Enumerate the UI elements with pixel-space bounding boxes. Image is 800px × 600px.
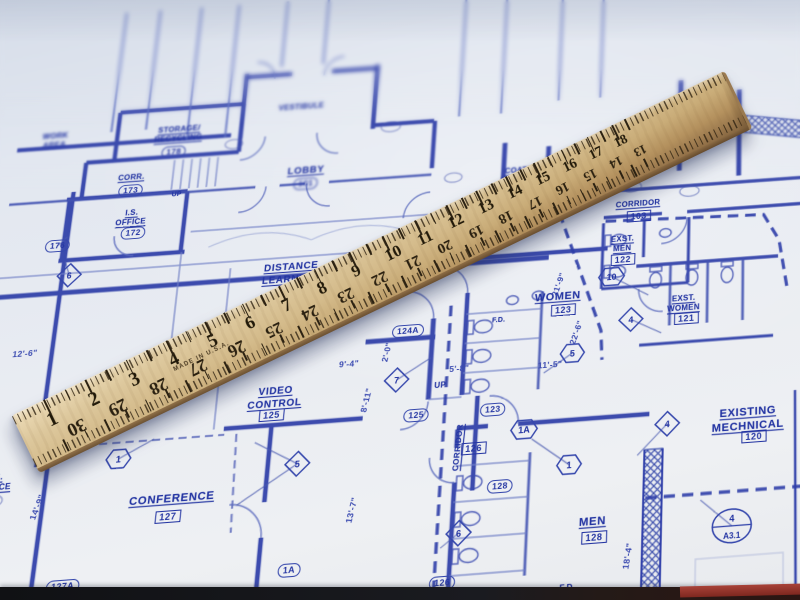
svg-text:4: 4 bbox=[729, 513, 734, 524]
ruler-number-bottom: 19 bbox=[465, 220, 486, 242]
room-number-corridor-up: 103 bbox=[627, 210, 651, 223]
ruler-number-bottom: 16 bbox=[553, 178, 572, 198]
svg-text:6: 6 bbox=[66, 271, 72, 281]
room-number-exst-women: 121 bbox=[674, 312, 698, 325]
dimension: 5'-8" bbox=[449, 363, 469, 374]
ruler-number-top: 7 bbox=[278, 294, 295, 317]
lines-thin bbox=[0, 117, 783, 600]
room-label-exst-men: EXST. MEN bbox=[610, 234, 634, 255]
room-label-men: MEN bbox=[579, 513, 606, 530]
ruler-number-bottom: 18 bbox=[495, 205, 515, 227]
ruler-number-bottom: 13 bbox=[631, 140, 649, 159]
keynote-diamond-4-mechanical: 4 bbox=[654, 410, 681, 438]
ruler-number-top: 1 bbox=[43, 407, 62, 432]
blueprint-photo: VESTIBULE LOBBY 101 WORK AREA STORAGE/ R… bbox=[0, 0, 800, 600]
room-number-men: 128 bbox=[581, 530, 607, 545]
ruler-number-top: 2 bbox=[85, 387, 104, 412]
keynote-hex-1-men: 1 bbox=[555, 453, 582, 476]
keynote-hex-5: 5 bbox=[559, 342, 586, 364]
keynote-diamond-4-women: 4 bbox=[618, 306, 644, 333]
keynote-diamond-6-men: 6 bbox=[444, 518, 472, 547]
note-floor-drain-1: F.D. bbox=[492, 316, 506, 326]
svg-text:5: 5 bbox=[294, 459, 300, 470]
ruler-number-top: 18 bbox=[611, 131, 630, 151]
svg-text:4: 4 bbox=[665, 419, 670, 430]
keynote-hex-1-conference: 1 bbox=[104, 448, 133, 470]
keynote-hex-10: 10 bbox=[597, 266, 625, 287]
room-label-work-area: WORK AREA bbox=[41, 131, 69, 152]
keynote-diamond-6-office: 6 bbox=[55, 262, 84, 289]
svg-text:1: 1 bbox=[115, 454, 122, 465]
svg-text:4: 4 bbox=[628, 315, 633, 325]
keynote-diamond-7: 7 bbox=[383, 366, 411, 394]
ruler-number-top: 3 bbox=[125, 367, 144, 392]
room-number-video-control: 125 bbox=[258, 408, 284, 422]
keynote-hex-1A: 1A bbox=[509, 418, 538, 440]
svg-text:1: 1 bbox=[566, 460, 572, 471]
keynote-diamond-5: 5 bbox=[283, 449, 312, 478]
ruler-number-top: 9 bbox=[348, 260, 364, 282]
detail-callout-4-A3.1: 4 A3.1 bbox=[709, 504, 755, 547]
dimension: 9'-4" bbox=[339, 358, 360, 369]
room-label-is-office: I.S. OFFICE bbox=[115, 207, 148, 229]
svg-text:5: 5 bbox=[570, 348, 576, 359]
dimension: 12'-6" bbox=[12, 348, 38, 360]
ruler-number-top: 4 bbox=[165, 348, 183, 372]
room-number-exst-men: 122 bbox=[611, 253, 635, 266]
svg-text:6: 6 bbox=[456, 528, 462, 539]
ruler-number-bottom: 17 bbox=[525, 191, 545, 212]
ruler-number-bottom: 15 bbox=[580, 165, 599, 185]
note-up-stairs: UP bbox=[171, 190, 182, 199]
room-number-corridor-low: 126 bbox=[461, 441, 487, 455]
svg-text:1A: 1A bbox=[518, 424, 531, 435]
floor-plan: VESTIBULE LOBBY 101 WORK AREA STORAGE/ R… bbox=[0, 1, 799, 600]
svg-text:A3.1: A3.1 bbox=[723, 530, 741, 541]
ruler-number-top: 8 bbox=[314, 277, 331, 300]
room-number-existing-mechanical: 120 bbox=[741, 429, 766, 443]
svg-text:10: 10 bbox=[606, 272, 616, 283]
room-number-women: 123 bbox=[551, 303, 576, 316]
ruler-number-bottom: 14 bbox=[606, 152, 625, 172]
room-number-conference: 127 bbox=[154, 510, 181, 524]
ruler-number-top: 6 bbox=[241, 312, 258, 335]
note-up-ramp: UP bbox=[434, 380, 446, 391]
fixtures bbox=[452, 224, 734, 564]
svg-text:7: 7 bbox=[394, 375, 400, 386]
room-label-storage: STORAGE/ RECYCLING bbox=[154, 123, 204, 145]
room-label-corr: CORR. bbox=[118, 172, 146, 183]
dimension: 11'-5" bbox=[538, 359, 563, 371]
